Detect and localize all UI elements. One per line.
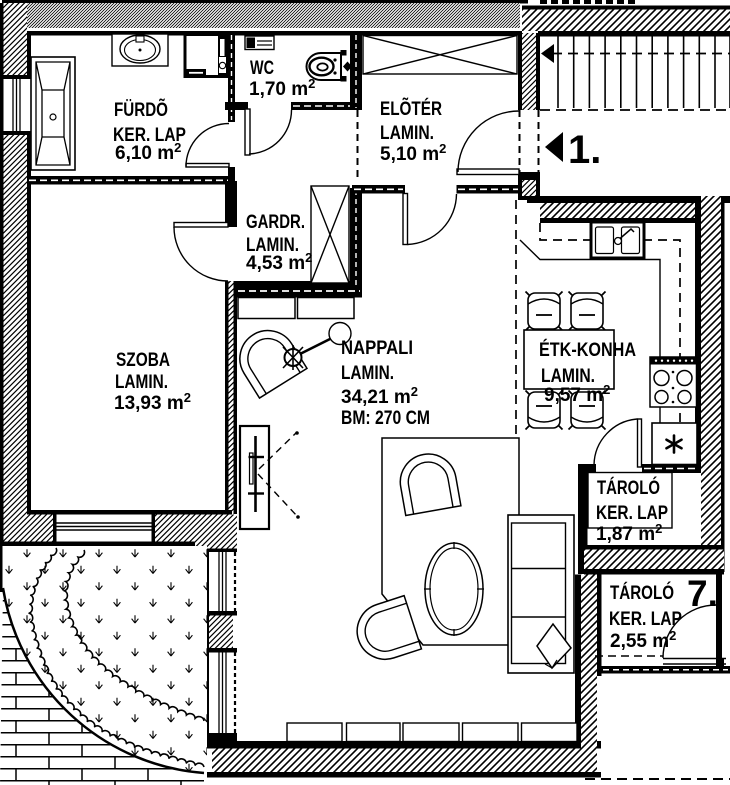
svg-text:13,93 m2: 13,93 m2	[114, 390, 191, 414]
svg-text:1.: 1.	[568, 128, 601, 172]
svg-text:9,57 m2: 9,57 m2	[544, 382, 610, 406]
svg-text:5,10 m2: 5,10 m2	[380, 141, 446, 165]
svg-text:NAPPALI: NAPPALI	[341, 338, 413, 359]
svg-text:LAMIN.: LAMIN.	[341, 363, 394, 384]
svg-text:TÁROLÓ: TÁROLÓ	[597, 477, 660, 499]
svg-text:KER. LAP: KER. LAP	[609, 609, 682, 630]
svg-text:1,87 m2: 1,87 m2	[596, 521, 662, 545]
svg-text:LAMIN.: LAMIN.	[115, 372, 168, 393]
svg-text:ELÕTÉR: ELÕTÉR	[380, 98, 442, 120]
svg-text:GARDR.: GARDR.	[246, 212, 305, 233]
svg-text:TÁROLÓ: TÁROLÓ	[610, 582, 674, 604]
svg-text:FÜRDÕ: FÜRDÕ	[114, 99, 168, 121]
svg-text:4,53 m2: 4,53 m2	[246, 250, 312, 274]
svg-text:6,10 m2: 6,10 m2	[115, 140, 181, 164]
svg-text:ÉTK-KONHA: ÉTK-KONHA	[539, 339, 636, 361]
svg-text:WC: WC	[250, 58, 274, 79]
svg-text:LAMIN.: LAMIN.	[380, 123, 434, 144]
svg-text:7.: 7.	[687, 573, 718, 614]
svg-text:SZOBA: SZOBA	[116, 350, 170, 371]
svg-text:2,55 m2: 2,55 m2	[610, 628, 676, 652]
svg-text:1,70 m2: 1,70 m2	[249, 76, 315, 100]
svg-text:BM: 270 CM: BM: 270 CM	[341, 408, 430, 429]
svg-text:LAMIN.: LAMIN.	[541, 366, 595, 387]
svg-text:34,21 m2: 34,21 m2	[341, 384, 418, 408]
